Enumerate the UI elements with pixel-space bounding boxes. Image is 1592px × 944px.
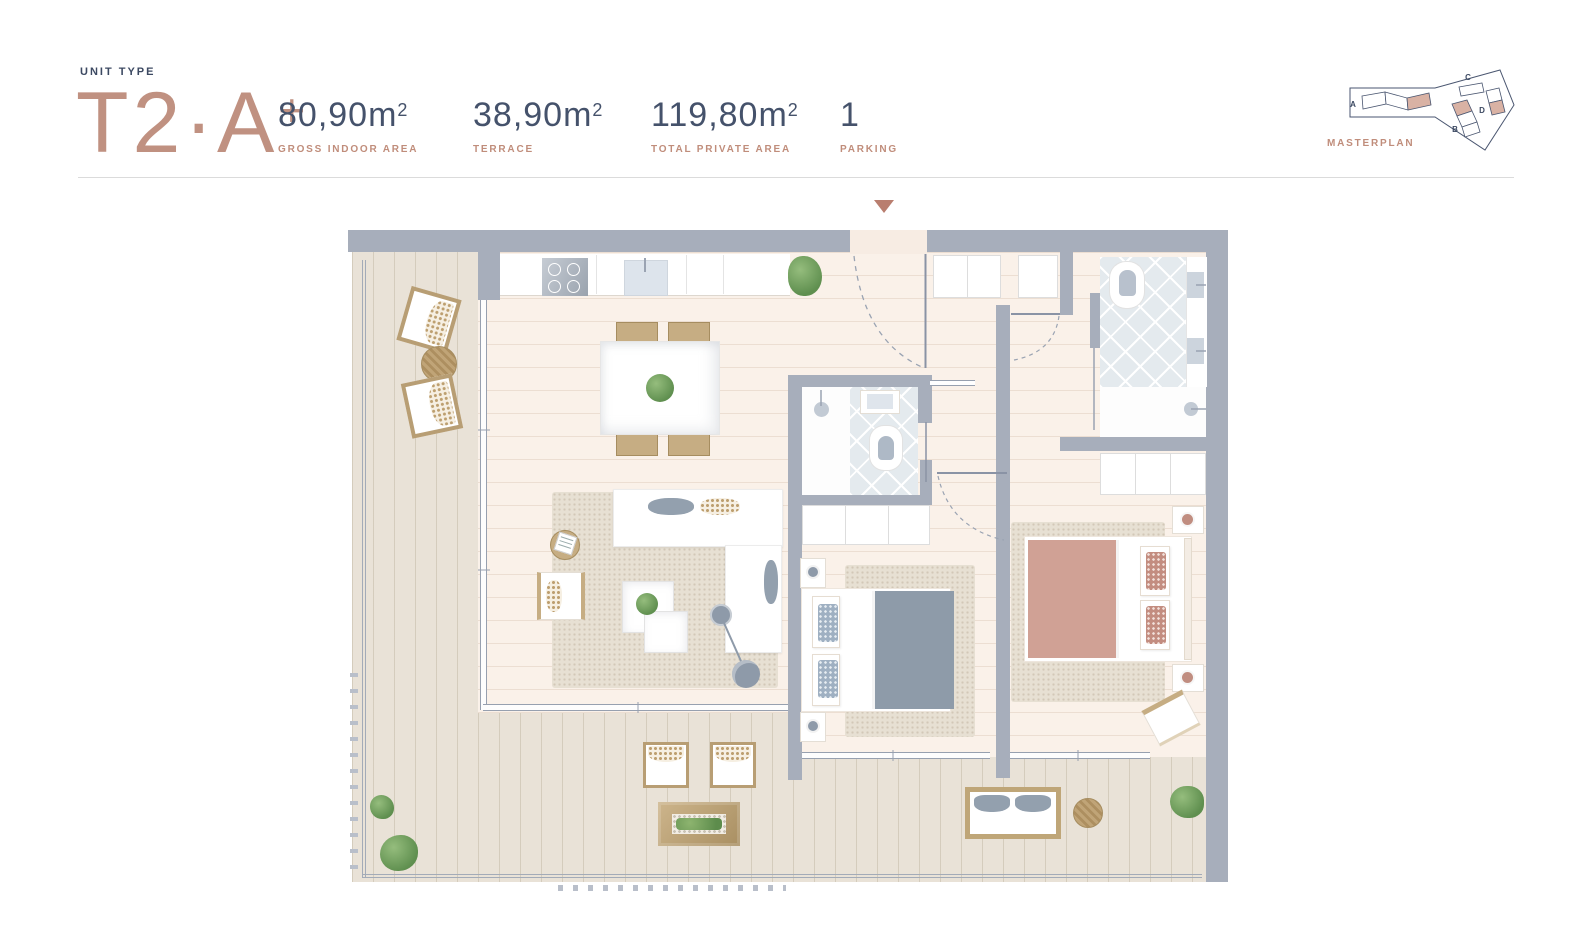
wardrobe-divider: [888, 506, 889, 544]
header-divider: [78, 177, 1514, 178]
wall-right: [1206, 230, 1228, 882]
floor-lamp-base: [732, 660, 760, 688]
bathroom2-sink: [1187, 272, 1204, 298]
bathroom2-toilet-seat: [1119, 270, 1136, 296]
bedroom2-window: [1006, 752, 1150, 759]
dining-chair: [668, 432, 710, 456]
wall-kitchen-stub: [478, 252, 500, 300]
terrace-dotted-trim: [558, 885, 786, 891]
stat-label: TERRACE: [473, 144, 603, 155]
shower-head-icon: [814, 402, 829, 417]
counter-divider: [723, 255, 724, 294]
wall-bathroom1-bottom: [788, 495, 932, 505]
terrace-side-table: [1073, 798, 1103, 828]
masterplan-label: MASTERPLAN: [1327, 138, 1414, 149]
bathroom2-sink: [1187, 338, 1204, 364]
coffee-table-nested: [645, 612, 687, 652]
coffee-table-plant: [636, 593, 658, 615]
wall-bathroom2-bottom: [1060, 437, 1228, 451]
hall-opening-lintel: [930, 380, 975, 386]
wardrobe-divider: [1170, 454, 1171, 494]
stat-value: 1: [840, 96, 898, 135]
unit-type-title: T2·A+: [76, 80, 305, 166]
building-d-label: D: [1479, 106, 1485, 115]
entrance-arrow-icon: [874, 200, 894, 213]
building-a-label: A: [1350, 100, 1356, 109]
sofa: [613, 489, 783, 547]
accent-pillow-blue: [818, 660, 838, 698]
entry-recess-floor: [850, 230, 927, 254]
hall-closet: [1018, 255, 1058, 298]
wall-bathroom1-right-lower: [920, 460, 932, 505]
bedroom1-wardrobe: [802, 505, 930, 545]
bedroom1-window: [800, 752, 990, 759]
plant: [1170, 786, 1204, 818]
living-terrace-window: [480, 298, 487, 710]
chaise-cushion-gray: [764, 560, 778, 604]
bathroom1-toilet-seat: [878, 436, 894, 460]
terrace-edge: [362, 874, 1202, 875]
stat-value: 119,80m2: [651, 96, 799, 135]
lounge-chair: [401, 373, 464, 439]
wardrobe-divider: [845, 506, 846, 544]
stat-value: 38,90m2: [473, 96, 603, 135]
bed-headboard: [1184, 538, 1192, 660]
shower-head-icon: [1184, 402, 1198, 416]
terrace-edge: [362, 877, 1202, 878]
accent-pillow-rose: [1146, 606, 1166, 644]
floor-plan: [348, 230, 1228, 894]
wall-bedroom-divider: [996, 305, 1010, 778]
armchair-cushion: [546, 580, 562, 612]
terrace-chair: [710, 742, 756, 788]
stat-terrace: 38,90m2 TERRACE: [473, 96, 603, 155]
accent-pillow-blue: [818, 604, 838, 642]
masterplan-thumbnail[interactable]: A B C D MASTERPLAN: [1318, 58, 1518, 158]
counter-divider: [686, 255, 687, 294]
stat-value: 80,90m2: [278, 96, 418, 135]
bed-duvet-gray: [872, 591, 954, 709]
building-b-label: B: [1452, 125, 1458, 134]
wardrobe-divider: [1135, 454, 1136, 494]
floorplan-sheet: UNIT TYPE T2·A+ 80,90m2 GROSS INDOOR ARE…: [0, 0, 1592, 944]
counter-divider: [596, 255, 597, 294]
terrace-edge: [362, 260, 363, 878]
stat-label: PARKING: [840, 144, 898, 155]
stat-total-private-area: 119,80m2 TOTAL PRIVATE AREA: [651, 96, 799, 155]
living-bottom-window: [483, 704, 791, 711]
bed-duvet-rose: [1028, 540, 1119, 658]
plant: [380, 835, 418, 871]
dining-chair: [616, 432, 658, 456]
stat-label: GROSS INDOOR AREA: [278, 144, 418, 155]
nightstand-lamp: [806, 719, 820, 733]
stat-label: TOTAL PRIVATE AREA: [651, 144, 799, 155]
kitchen-sink: [624, 260, 668, 296]
unit-type-name: T2·A: [76, 75, 278, 171]
accent-pillow-rose: [1146, 552, 1166, 590]
terrace-dotted-trim: [350, 673, 358, 879]
wall-bathroom1-top: [788, 375, 930, 387]
sofa-cushion-gray: [648, 498, 694, 515]
plant: [370, 795, 394, 819]
wall-top-left: [348, 230, 850, 252]
stat-parking: 1 PARKING: [840, 96, 898, 155]
plant: [788, 256, 822, 296]
dining-table-plant: [646, 374, 674, 402]
nightstand-lamp: [1180, 512, 1195, 527]
terrace-planter: [658, 802, 740, 846]
wall-bathroom2-left-lower: [1090, 293, 1100, 348]
stat-gross-indoor-area: 80,90m2 GROSS INDOOR AREA: [278, 96, 418, 155]
terrace-chair: [643, 742, 689, 788]
sofa-cushion-patterned: [700, 498, 740, 515]
wall-top-right: [927, 230, 1206, 252]
building-c-label: C: [1465, 73, 1471, 82]
terrace-edge: [365, 260, 366, 878]
outdoor-sofa: [965, 787, 1061, 839]
wall-bathroom2-left-upper: [1060, 252, 1073, 315]
cooktop: [542, 258, 588, 296]
closet-divider: [967, 256, 968, 297]
bedroom2-wardrobe: [1100, 453, 1206, 495]
bathroom1-sink-basin: [867, 394, 893, 409]
nightstand-lamp: [1180, 670, 1195, 685]
nightstand-lamp: [806, 565, 820, 579]
